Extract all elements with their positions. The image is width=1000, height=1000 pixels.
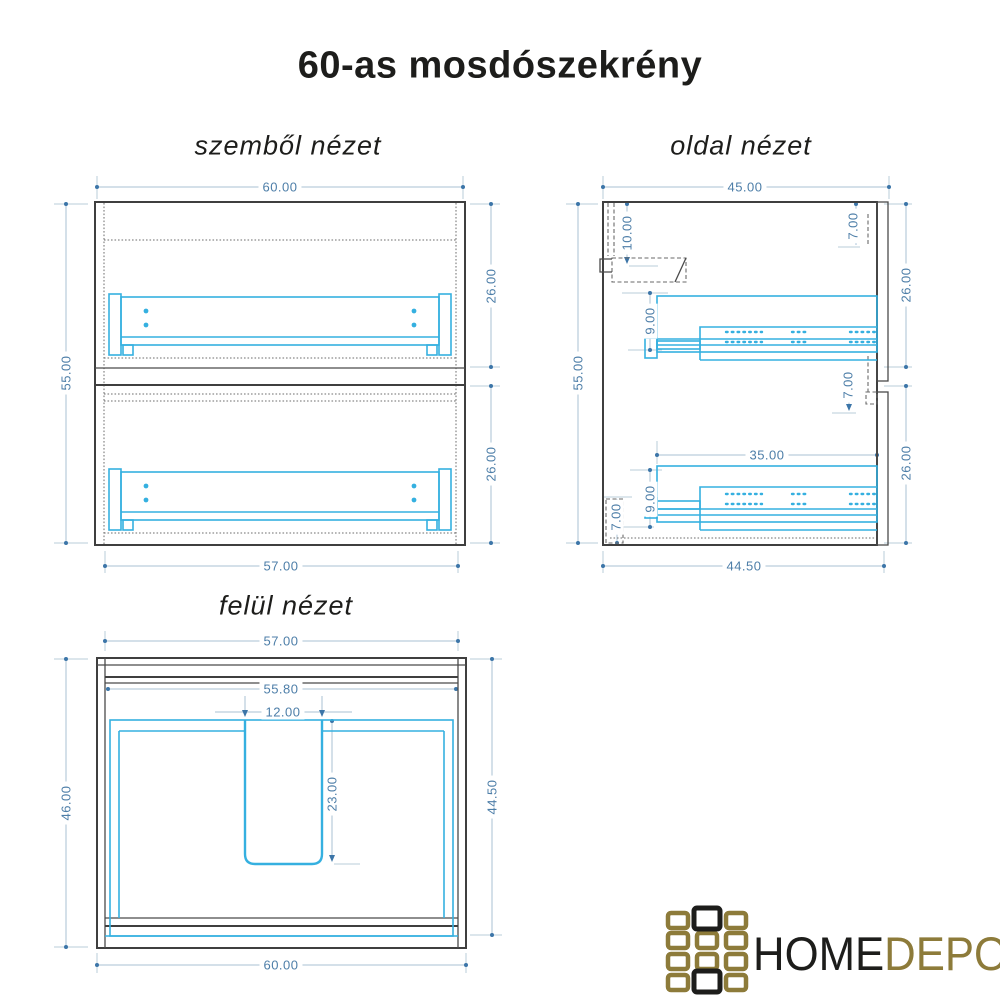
dim-label-side-plinth: 7.00 (609, 499, 624, 534)
dim-label-side-height-left: 55.00 (571, 351, 586, 394)
dim-label-top-depth-right: 44.50 (485, 775, 500, 818)
dim-label-front-drawer-lower: 26.00 (484, 442, 499, 485)
dim-label-front-height-left: 55.00 (59, 351, 74, 394)
dim-label-side-back-offset: 10.00 (620, 211, 635, 254)
dim-label-top-width-bottom: 60.00 (259, 958, 302, 973)
logo-text-depo: DEPO (884, 927, 1000, 980)
dim-label-side-depth-top: 45.00 (723, 180, 766, 195)
technical-drawing-page: 60-as mosdószekrény szemből nézet oldal … (0, 0, 1000, 1000)
cabinet-outline-top (97, 658, 466, 948)
drawer-front-side-upper (877, 202, 888, 381)
dim-label-side-rail-lower: 9.00 (643, 481, 658, 516)
dim-label-side-depth-bottom: 44.50 (722, 559, 765, 574)
dim-label-front-width-top: 60.00 (258, 180, 301, 195)
dim-label-front-width-bottom: 57.00 (259, 559, 302, 574)
dim-label-top-cutout-depth: 23.00 (325, 772, 340, 815)
front-view-label: szemből nézet (194, 131, 381, 162)
page-title: 60-as mosdószekrény (298, 45, 702, 88)
dim-label-side-rail-upper: 9.00 (643, 303, 658, 338)
dim-label-side-front-top-gap: 7.00 (846, 208, 861, 243)
logo-grid-icon (660, 898, 755, 1000)
drawer-plan (105, 720, 458, 936)
front-view-drawing (54, 176, 500, 573)
dim-label-top-width-top: 57.00 (259, 634, 302, 649)
cabinet-outline-front (95, 202, 465, 545)
dim-label-front-drawer-upper: 26.00 (484, 264, 499, 307)
top-view-label: felül nézet (219, 591, 353, 622)
dim-label-top-width-inner: 55.80 (259, 682, 302, 697)
siphon-cutout (245, 720, 322, 864)
dim-label-top-depth-left: 46.00 (59, 781, 74, 824)
drawing-canvas (0, 0, 1000, 1000)
dim-label-side-front-mid-gap: 7.00 (841, 367, 856, 402)
dim-label-top-cutout-width: 12.00 (261, 705, 304, 720)
drawer-assembly-front-lower (109, 469, 451, 530)
side-view-label: oldal nézet (670, 131, 812, 162)
logo-text-home: HOME (753, 927, 884, 980)
drawer-assembly-side-lower (645, 466, 877, 530)
dim-label-side-front-lower: 26.00 (899, 441, 914, 484)
homedepo-logo: HOMEDEPO (660, 898, 1000, 1000)
logo-wordmark: HOMEDEPO (753, 926, 1000, 981)
dim-label-side-rail-length: 35.00 (745, 448, 788, 463)
drawer-assembly-side-upper (645, 296, 877, 360)
dim-label-side-front-upper: 26.00 (899, 263, 914, 306)
drawer-assembly-front-upper (109, 294, 451, 355)
wall-bracket (612, 258, 686, 282)
drawer-front-side-lower (877, 392, 888, 545)
